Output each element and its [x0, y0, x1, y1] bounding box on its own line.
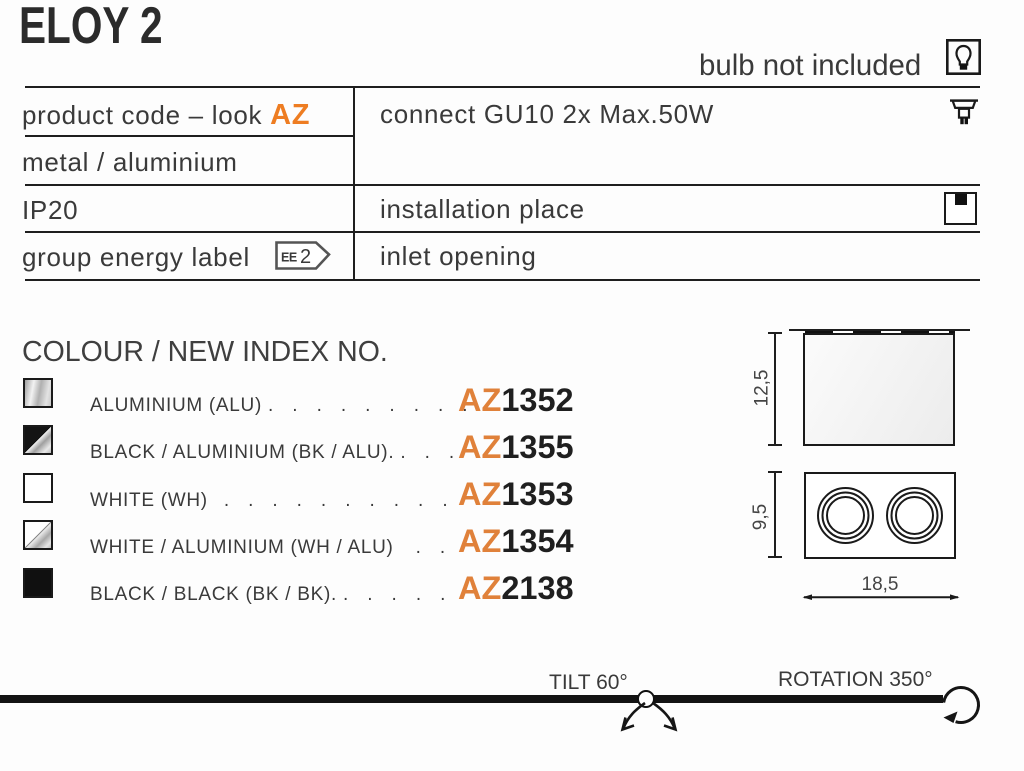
- svg-text:EE: EE: [281, 251, 297, 265]
- svg-text:2: 2: [300, 246, 311, 268]
